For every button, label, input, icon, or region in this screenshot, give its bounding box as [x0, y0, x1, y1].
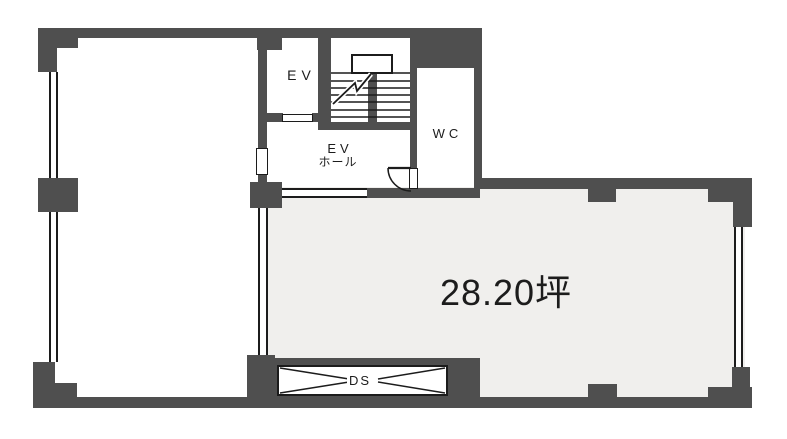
wall-block-above-wc [410, 30, 482, 68]
window-left-upper [49, 72, 58, 178]
pillar-bump-bottom [588, 384, 617, 398]
ev-hall-label: EV ホール [292, 142, 384, 169]
pillar-top-left-b [38, 48, 57, 72]
pillar-top-left-a [38, 28, 78, 48]
elevator-label: EV [267, 67, 331, 83]
stair-center-divider [368, 72, 377, 130]
ev-hall-bottom-wall [367, 188, 480, 198]
pillar-bottom-right-b [708, 387, 752, 408]
partition-pillar-top [257, 37, 282, 50]
partition-door-opening [256, 148, 268, 175]
stair-break-line [333, 74, 371, 104]
partition-pillar-mid [250, 182, 282, 208]
partition-window [258, 208, 268, 355]
window-left-lower [49, 212, 58, 362]
pillar-left-mid [38, 178, 78, 212]
elevator-bottom-wall-left [258, 113, 283, 122]
wc-label: WC [417, 126, 474, 141]
ev-hall-label-line1: EV [292, 142, 384, 156]
partition-wall-upper [258, 50, 267, 148]
floor-plan: EV EV ホール WC DS 28.20坪 [0, 0, 787, 439]
wc-right-wall [474, 30, 482, 188]
ev-hall-label-line2: ホール [292, 156, 384, 169]
ds-label: DS [347, 373, 373, 388]
wc-door-opening [409, 168, 418, 189]
stair-landing [352, 55, 392, 73]
stair-break-line-casing [333, 74, 371, 104]
elevator-door-opening [282, 114, 313, 122]
window-right [734, 227, 743, 367]
elevator-bottom-wall-right [312, 113, 331, 122]
area-label: 28.20坪 [396, 273, 616, 313]
wc-left-wall [410, 67, 417, 168]
pillar-bump-top [588, 186, 616, 202]
pillar-top-right-b [733, 202, 752, 227]
ev-hall-entrance-opening [282, 188, 367, 198]
